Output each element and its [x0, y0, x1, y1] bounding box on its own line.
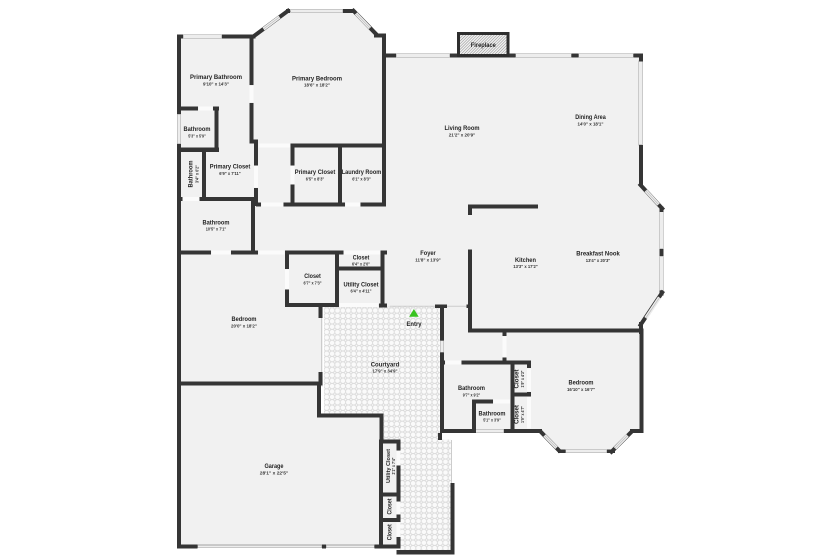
svg-text:16'10" x 16'7": 16'10" x 16'7"	[567, 387, 595, 392]
svg-text:17'9" x 34'9": 17'9" x 34'9"	[373, 369, 398, 374]
svg-text:3'4" x 6'2": 3'4" x 6'2"	[195, 165, 200, 183]
svg-text:Closet: Closet	[304, 273, 321, 280]
svg-text:Closet: Closet	[386, 499, 393, 515]
svg-text:Primary Bedroom: Primary Bedroom	[292, 75, 342, 82]
svg-text:13'3" x 17'2": 13'3" x 17'2"	[513, 264, 538, 269]
svg-text:14'0" x 18'1": 14'0" x 18'1"	[578, 121, 604, 126]
svg-text:5'1" x 3'9": 5'1" x 3'9"	[483, 418, 501, 423]
svg-text:Fireplace: Fireplace	[471, 42, 497, 49]
svg-text:6'5" x 8'3": 6'5" x 8'3"	[306, 177, 325, 182]
svg-text:Primary Bathroom: Primary Bathroom	[190, 74, 242, 81]
svg-text:Bathroom: Bathroom	[458, 385, 485, 392]
svg-text:21'2" x 20'9": 21'2" x 20'9"	[449, 132, 476, 137]
svg-text:Garage: Garage	[265, 463, 284, 470]
svg-text:Bathroom: Bathroom	[184, 126, 211, 133]
svg-text:Primary Closet: Primary Closet	[295, 169, 336, 176]
svg-text:28'1" x 22'5": 28'1" x 22'5"	[260, 470, 289, 475]
svg-text:6'4" x 4'11": 6'4" x 4'11"	[351, 289, 372, 294]
svg-text:Bathroom: Bathroom	[203, 219, 230, 226]
svg-text:Breakfast Nook: Breakfast Nook	[576, 251, 620, 258]
svg-text:10'5" x 7'1": 10'5" x 7'1"	[206, 227, 227, 232]
svg-text:Entry: Entry	[407, 321, 422, 328]
svg-text:2'1" x 7'4": 2'1" x 7'4"	[391, 458, 396, 475]
svg-text:Primary Closet: Primary Closet	[210, 164, 251, 171]
svg-text:Foyer: Foyer	[420, 250, 436, 257]
svg-text:18'6" x 18'2": 18'6" x 18'2"	[304, 83, 330, 88]
svg-text:6'4" x 2'0": 6'4" x 2'0"	[352, 261, 370, 266]
svg-text:11'8" x 13'9": 11'8" x 13'9"	[415, 258, 441, 263]
svg-text:9'7" x 9'2": 9'7" x 9'2"	[463, 393, 481, 398]
svg-text:9'10" x 14'3": 9'10" x 14'3"	[203, 81, 229, 86]
svg-text:Bathroom: Bathroom	[187, 160, 194, 187]
svg-text:5'3" x 5'9": 5'3" x 5'9"	[188, 133, 206, 138]
svg-text:Living Room: Living Room	[445, 125, 480, 132]
svg-text:6'1" x 8'3": 6'1" x 8'3"	[352, 177, 371, 182]
svg-text:Courtyard: Courtyard	[371, 361, 400, 368]
svg-text:Laundry Room: Laundry Room	[342, 169, 382, 176]
svg-text:Kitchen: Kitchen	[515, 257, 536, 264]
svg-text:Closet: Closet	[386, 524, 393, 540]
svg-text:Utility Closet: Utility Closet	[344, 282, 380, 289]
svg-text:1'9" x 4'7": 1'9" x 4'7"	[520, 406, 525, 423]
svg-text:13'4" x 20'3": 13'4" x 20'3"	[586, 258, 611, 263]
svg-text:6'9" x 7'11": 6'9" x 7'11"	[219, 171, 241, 176]
svg-text:Bedroom: Bedroom	[232, 316, 257, 323]
svg-text:20'0" x 18'2": 20'0" x 18'2"	[231, 323, 257, 328]
svg-text:6'7" x 7'3": 6'7" x 7'3"	[304, 281, 322, 286]
svg-text:Bedroom: Bedroom	[569, 380, 594, 387]
svg-text:1'9" x 4'3": 1'9" x 4'3"	[520, 371, 525, 388]
svg-text:Dining Area: Dining Area	[575, 114, 606, 121]
